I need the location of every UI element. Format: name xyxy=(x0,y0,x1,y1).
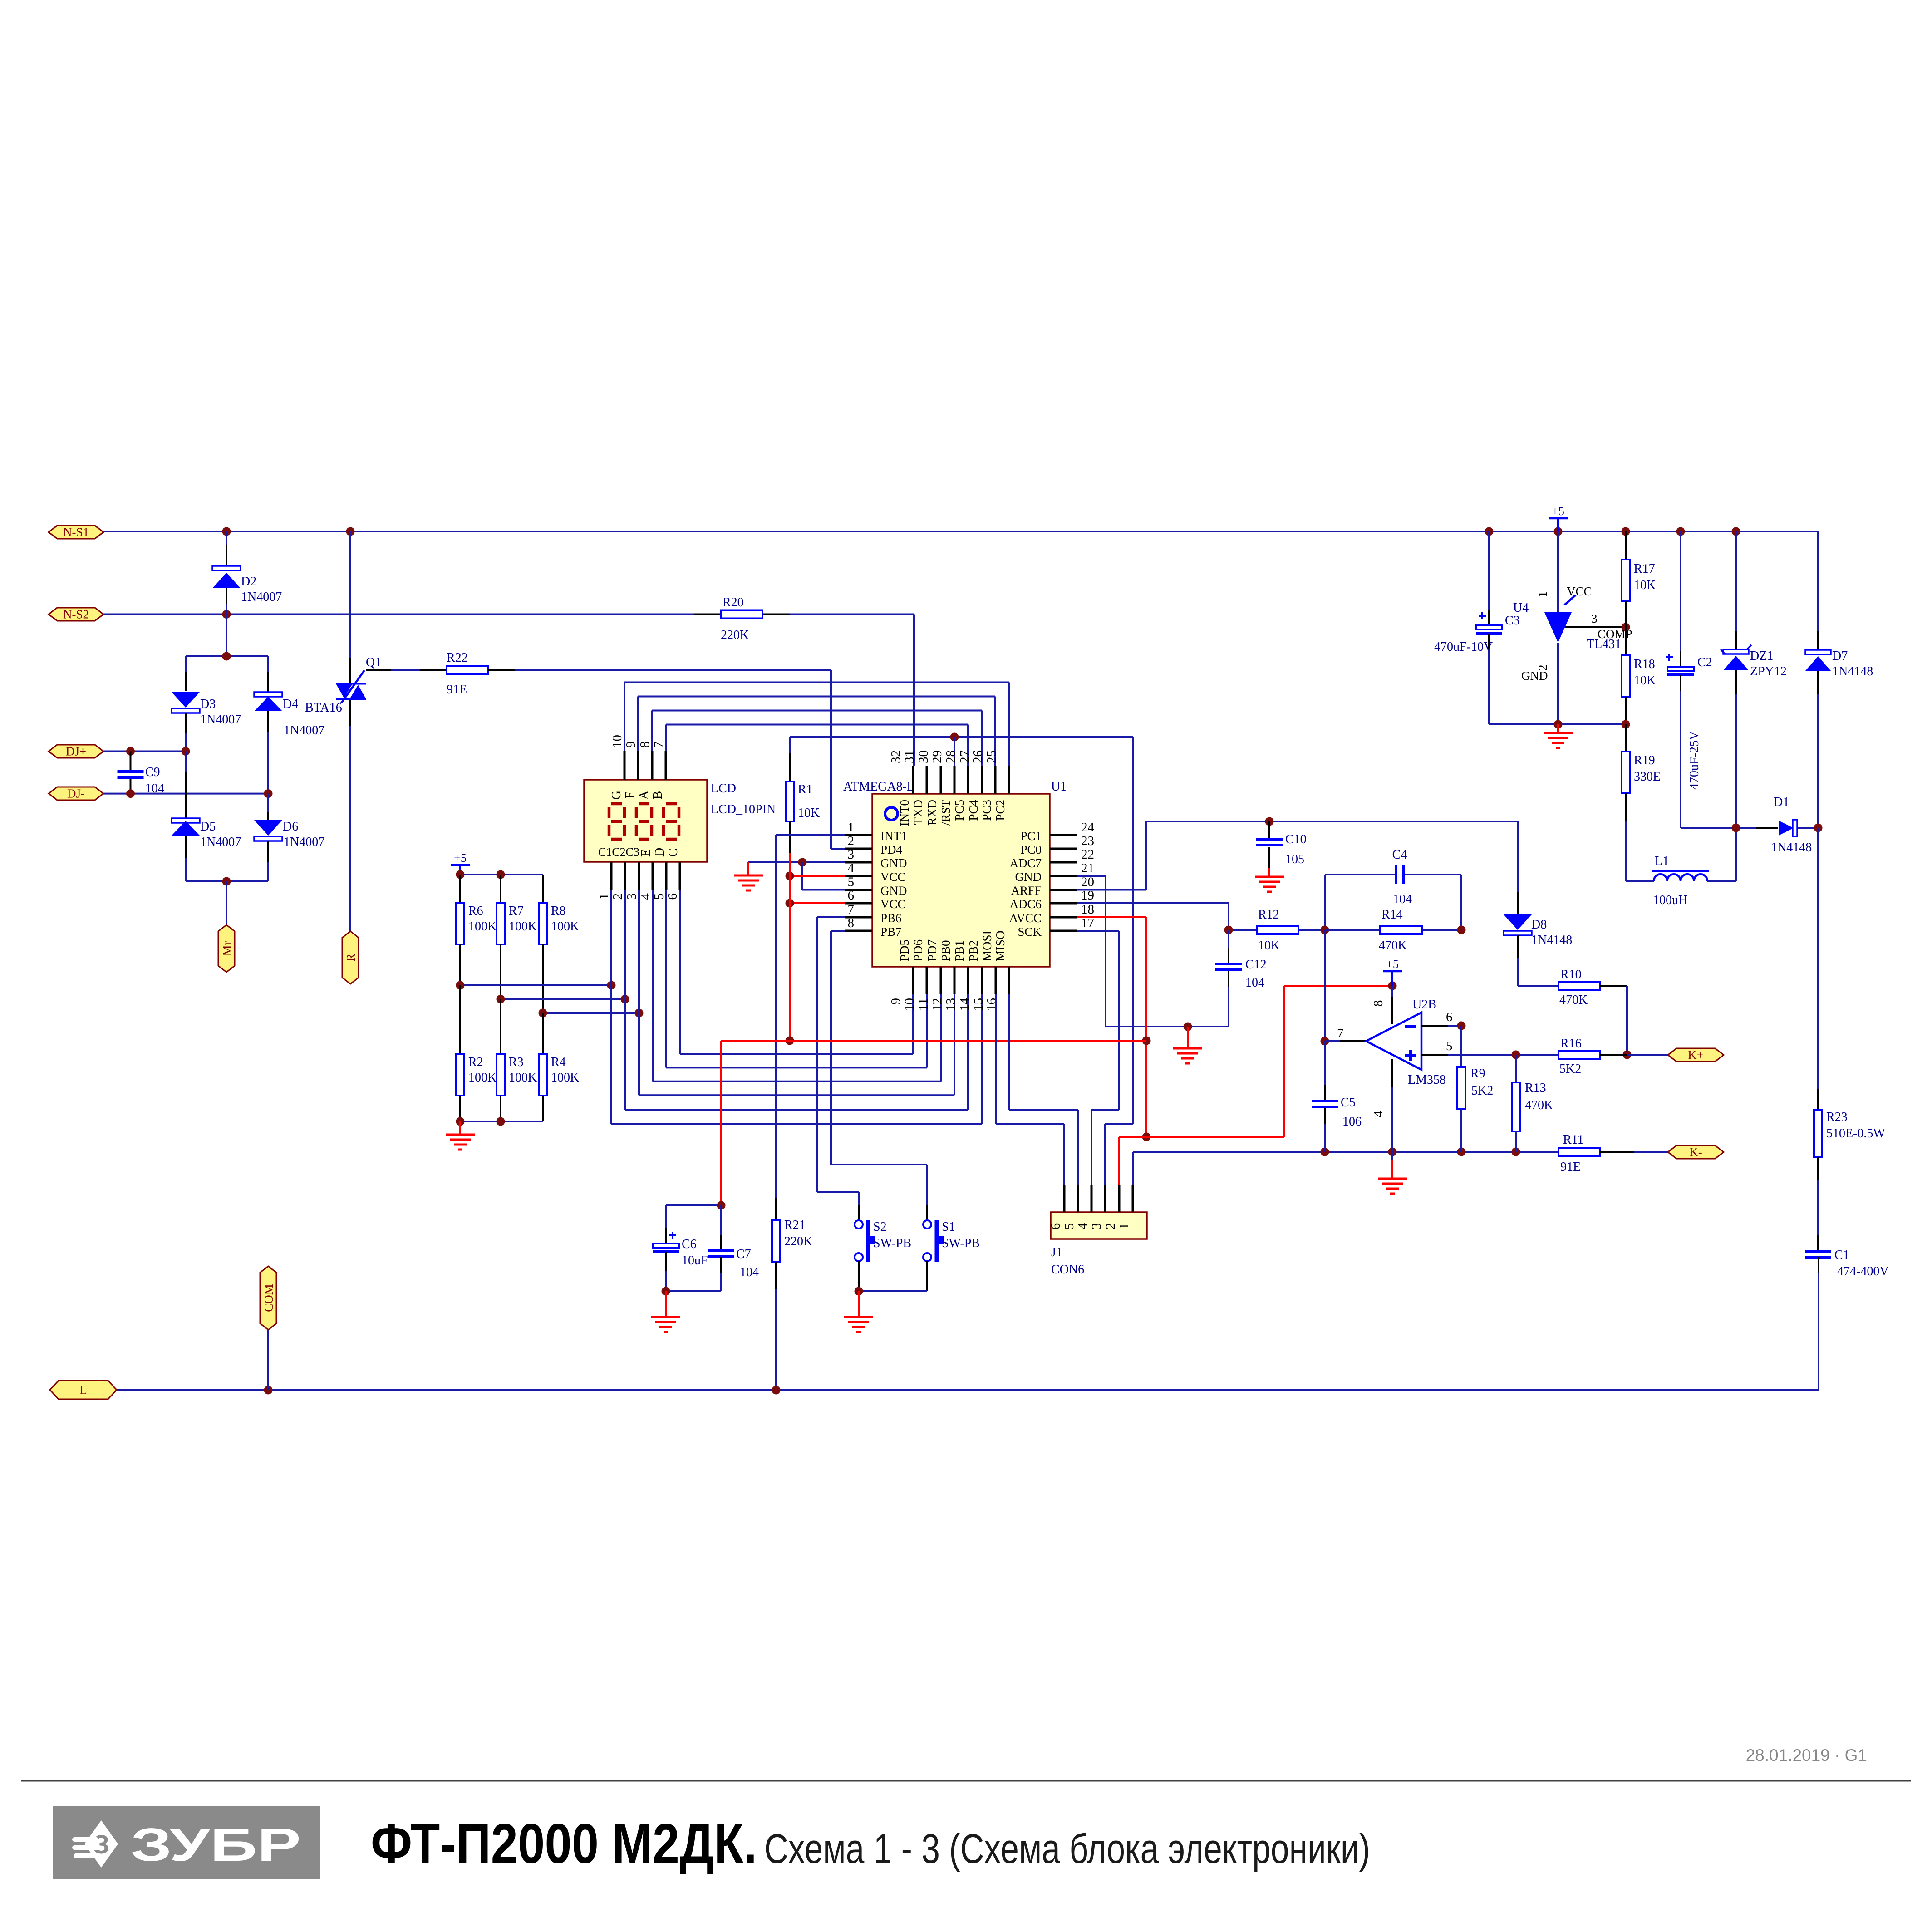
svg-text:27: 27 xyxy=(958,750,972,763)
svg-text:105: 105 xyxy=(1285,852,1304,866)
svg-text:220K: 220K xyxy=(721,628,749,642)
svg-text:3: 3 xyxy=(848,847,855,862)
svg-text:D1: D1 xyxy=(1774,795,1789,809)
svg-text:PD5: PD5 xyxy=(898,939,911,961)
svg-text:C: C xyxy=(666,848,680,857)
svg-text:J1: J1 xyxy=(1051,1245,1062,1259)
svg-text:SW-PB: SW-PB xyxy=(873,1236,911,1250)
svg-text:R19: R19 xyxy=(1634,753,1655,767)
svg-text:Схема 1 - 3 (Схема блока элект: Схема 1 - 3 (Схема блока электроники) xyxy=(764,1826,1370,1872)
svg-text:100K: 100K xyxy=(551,1071,579,1085)
svg-text:TXD: TXD xyxy=(911,800,925,825)
svg-text:20: 20 xyxy=(1081,875,1094,890)
svg-text:GND: GND xyxy=(880,856,907,870)
svg-text:10: 10 xyxy=(902,998,917,1011)
svg-text:10K: 10K xyxy=(1634,578,1656,592)
svg-text:5: 5 xyxy=(1062,1223,1077,1230)
svg-text:C2: C2 xyxy=(1697,655,1712,669)
svg-text:C3: C3 xyxy=(1505,614,1520,628)
svg-text:VCC: VCC xyxy=(880,870,906,884)
svg-text:100K: 100K xyxy=(468,1071,497,1085)
svg-text:VCC: VCC xyxy=(1567,585,1592,598)
svg-text:22: 22 xyxy=(1081,847,1094,862)
svg-text:PD4: PD4 xyxy=(880,843,903,856)
svg-text:1N4007: 1N4007 xyxy=(284,835,324,849)
svg-text:R20: R20 xyxy=(723,595,744,610)
svg-text:1: 1 xyxy=(848,820,855,835)
svg-text:R6: R6 xyxy=(468,904,483,918)
svg-text:R7: R7 xyxy=(509,904,524,918)
svg-text:PC3: PC3 xyxy=(980,800,993,821)
svg-text:6: 6 xyxy=(848,888,855,903)
svg-text:28.01.2019 · G1: 28.01.2019 · G1 xyxy=(1746,1746,1867,1765)
svg-text:U1: U1 xyxy=(1051,780,1067,794)
svg-text:5: 5 xyxy=(652,893,666,900)
svg-text:C1C2C3: C1C2C3 xyxy=(598,846,639,859)
svg-text:1N4007: 1N4007 xyxy=(241,590,282,604)
svg-text:11: 11 xyxy=(916,998,931,1011)
svg-text:12: 12 xyxy=(930,998,944,1011)
svg-text:C12: C12 xyxy=(1245,958,1267,972)
svg-text:R8: R8 xyxy=(551,904,566,918)
svg-text:104: 104 xyxy=(1393,892,1412,906)
svg-text:U2B: U2B xyxy=(1412,998,1436,1012)
svg-text:E: E xyxy=(639,849,653,857)
svg-text:GND: GND xyxy=(880,884,907,898)
svg-text:MOSI: MOSI xyxy=(980,930,994,961)
svg-text:D5: D5 xyxy=(200,820,216,834)
svg-text:4: 4 xyxy=(638,893,653,900)
svg-text:1N4148: 1N4148 xyxy=(1771,841,1812,855)
svg-text:R18: R18 xyxy=(1634,657,1655,671)
svg-text:1N4007: 1N4007 xyxy=(284,723,324,737)
svg-text:6: 6 xyxy=(1048,1223,1063,1230)
svg-text:ФТ-П2000 М2ДК.: ФТ-П2000 М2ДК. xyxy=(371,1813,757,1875)
svg-text:C6: C6 xyxy=(682,1237,697,1251)
svg-text:100K: 100K xyxy=(509,919,537,934)
svg-text:21: 21 xyxy=(1081,861,1094,875)
svg-text:LM358: LM358 xyxy=(1408,1073,1446,1087)
svg-text:474-400V: 474-400V xyxy=(1837,1264,1889,1278)
svg-text:16: 16 xyxy=(984,998,999,1011)
svg-text:R13: R13 xyxy=(1525,1081,1546,1095)
svg-text:MISO: MISO xyxy=(993,930,1007,961)
svg-text:4: 4 xyxy=(848,861,855,875)
svg-text:100uH: 100uH xyxy=(1653,893,1687,907)
svg-text:AVCC: AVCC xyxy=(1009,911,1042,925)
svg-text:R16: R16 xyxy=(1560,1037,1582,1051)
svg-text:PB7: PB7 xyxy=(880,925,902,939)
svg-text:D4: D4 xyxy=(283,697,298,711)
svg-text:ZPY12: ZPY12 xyxy=(1750,664,1787,678)
svg-text:S2: S2 xyxy=(873,1220,887,1234)
svg-text:K+: K+ xyxy=(1688,1048,1704,1062)
svg-text:8: 8 xyxy=(848,916,855,930)
svg-text:R21: R21 xyxy=(784,1218,806,1232)
svg-text:7: 7 xyxy=(1337,1026,1344,1041)
svg-text:6: 6 xyxy=(1446,1010,1453,1024)
svg-text:N-S2: N-S2 xyxy=(63,608,89,621)
svg-text:L: L xyxy=(79,1383,87,1397)
svg-text:INT1: INT1 xyxy=(880,829,907,843)
svg-text:R1: R1 xyxy=(798,782,813,796)
svg-text:1N4007: 1N4007 xyxy=(200,713,241,727)
svg-text:8: 8 xyxy=(638,742,652,748)
svg-text:C4: C4 xyxy=(1392,848,1407,862)
svg-text:RXD: RXD xyxy=(925,800,939,826)
svg-text:C10: C10 xyxy=(1285,832,1307,846)
svg-text:8: 8 xyxy=(1371,1000,1386,1007)
svg-text:R23: R23 xyxy=(1826,1110,1848,1124)
svg-text:1: 1 xyxy=(1536,591,1549,598)
svg-text:1N4148: 1N4148 xyxy=(1531,933,1572,947)
svg-text:10K: 10K xyxy=(1634,673,1656,688)
svg-text:PC5: PC5 xyxy=(953,800,966,821)
svg-text:104: 104 xyxy=(740,1265,759,1279)
svg-text:25: 25 xyxy=(984,750,999,763)
svg-text:R17: R17 xyxy=(1634,562,1655,576)
svg-text:15: 15 xyxy=(971,998,986,1011)
svg-text:+5: +5 xyxy=(1386,958,1399,971)
svg-text:D6: D6 xyxy=(283,820,298,834)
svg-text:3: 3 xyxy=(624,893,639,900)
svg-text:+5: +5 xyxy=(1552,505,1564,518)
svg-text:PB1: PB1 xyxy=(953,940,966,961)
svg-text:4: 4 xyxy=(1371,1111,1386,1117)
svg-text:F: F xyxy=(623,791,637,799)
svg-text:GND: GND xyxy=(1015,870,1042,884)
svg-text:10: 10 xyxy=(610,735,624,748)
svg-text:220K: 220K xyxy=(784,1234,812,1249)
svg-text:ЗУБР: ЗУБР xyxy=(131,1819,301,1871)
svg-text:+5: +5 xyxy=(454,851,467,865)
svg-text:DJ+: DJ+ xyxy=(66,745,86,758)
svg-text:C5: C5 xyxy=(1341,1096,1356,1110)
svg-text:PB6: PB6 xyxy=(880,911,902,925)
svg-text:COM: COM xyxy=(262,1284,275,1312)
svg-text:106: 106 xyxy=(1342,1115,1362,1129)
svg-text:A: A xyxy=(637,790,651,800)
svg-text:330E: 330E xyxy=(1634,770,1661,784)
svg-text:2: 2 xyxy=(610,893,625,900)
svg-text:ADC7: ADC7 xyxy=(1009,856,1042,870)
svg-text:5: 5 xyxy=(848,875,855,890)
svg-text:R9: R9 xyxy=(1470,1067,1485,1081)
svg-text:PB2: PB2 xyxy=(967,940,980,961)
svg-text:K-: K- xyxy=(1689,1145,1702,1159)
svg-text:91E: 91E xyxy=(1560,1160,1581,1174)
svg-text:28: 28 xyxy=(944,750,958,763)
svg-text:10K: 10K xyxy=(798,806,820,820)
svg-text:100K: 100K xyxy=(509,1071,537,1085)
svg-text:CON6: CON6 xyxy=(1051,1263,1084,1277)
svg-text:PD6: PD6 xyxy=(911,939,925,961)
svg-text:/RST: /RST xyxy=(939,800,953,826)
svg-text:Mr: Mr xyxy=(220,941,234,956)
svg-text:R: R xyxy=(344,954,358,962)
svg-text:1: 1 xyxy=(597,893,611,900)
svg-text:470K: 470K xyxy=(1559,993,1588,1007)
svg-text:PC2: PC2 xyxy=(993,800,1007,821)
svg-text:5K2: 5K2 xyxy=(1471,1084,1493,1098)
svg-text:30: 30 xyxy=(916,750,931,763)
svg-text:Q1: Q1 xyxy=(366,655,381,669)
svg-text:7: 7 xyxy=(848,902,855,917)
svg-text:R3: R3 xyxy=(509,1055,524,1069)
svg-text:COMP: COMP xyxy=(1598,627,1632,641)
svg-text:PD7: PD7 xyxy=(925,939,939,961)
svg-text:6: 6 xyxy=(665,893,680,900)
svg-text:INT0: INT0 xyxy=(898,800,911,826)
svg-text:R10: R10 xyxy=(1560,968,1582,982)
svg-text:7: 7 xyxy=(651,742,666,748)
svg-text:R11: R11 xyxy=(1563,1133,1584,1147)
svg-text:D: D xyxy=(653,848,667,857)
svg-text:29: 29 xyxy=(930,750,944,763)
svg-text:SW-PB: SW-PB xyxy=(942,1236,980,1250)
svg-text:ATMEGA8-L: ATMEGA8-L xyxy=(843,780,914,794)
svg-text:N-S1: N-S1 xyxy=(63,526,89,539)
svg-text:PC4: PC4 xyxy=(967,800,980,821)
svg-text:510E-0.5W: 510E-0.5W xyxy=(1826,1126,1885,1141)
svg-text:18: 18 xyxy=(1081,902,1094,917)
svg-text:PC0: PC0 xyxy=(1020,843,1042,856)
svg-text:C1: C1 xyxy=(1834,1248,1849,1262)
svg-text:5: 5 xyxy=(1446,1039,1453,1053)
svg-text:3: 3 xyxy=(1591,612,1598,625)
svg-text:104: 104 xyxy=(1245,976,1264,990)
svg-text:D7: D7 xyxy=(1832,649,1848,663)
svg-text:R2: R2 xyxy=(468,1055,483,1069)
svg-text:5K2: 5K2 xyxy=(1559,1062,1581,1076)
svg-text:100K: 100K xyxy=(551,919,579,934)
svg-text:470uF-10V: 470uF-10V xyxy=(1434,640,1493,654)
svg-text:PB0: PB0 xyxy=(939,940,953,961)
svg-text:ADC6: ADC6 xyxy=(1009,897,1042,911)
svg-text:1: 1 xyxy=(1117,1223,1131,1230)
svg-text:3: 3 xyxy=(1089,1223,1104,1230)
svg-text:S1: S1 xyxy=(942,1220,955,1234)
svg-text:470uF-25V: 470uF-25V xyxy=(1687,731,1701,790)
svg-text:G: G xyxy=(610,791,624,800)
svg-text:10K: 10K xyxy=(1258,939,1280,953)
svg-text:SCK: SCK xyxy=(1018,925,1042,939)
svg-text:L1: L1 xyxy=(1655,854,1669,868)
svg-text:14: 14 xyxy=(958,998,972,1012)
svg-text:2: 2 xyxy=(848,834,855,848)
svg-text:LCD_10PIN: LCD_10PIN xyxy=(711,802,776,816)
svg-text:B: B xyxy=(651,791,665,800)
svg-text:4: 4 xyxy=(1076,1223,1090,1229)
svg-text:D2: D2 xyxy=(241,575,256,589)
svg-text:D8: D8 xyxy=(1531,918,1547,932)
svg-text:470K: 470K xyxy=(1525,1098,1553,1112)
svg-text:32: 32 xyxy=(889,750,903,763)
svg-text:R4: R4 xyxy=(551,1055,566,1069)
svg-text:26: 26 xyxy=(971,750,985,763)
svg-text:D3: D3 xyxy=(200,697,216,711)
svg-text:10uF: 10uF xyxy=(682,1254,708,1268)
svg-text:24: 24 xyxy=(1081,820,1095,835)
svg-text:R14: R14 xyxy=(1381,908,1403,922)
svg-text:31: 31 xyxy=(902,750,917,763)
svg-text:1N4148: 1N4148 xyxy=(1832,664,1873,678)
svg-text:R22: R22 xyxy=(447,651,468,665)
svg-text:91E: 91E xyxy=(447,683,467,697)
svg-text:2: 2 xyxy=(1103,1223,1118,1230)
svg-text:PC1: PC1 xyxy=(1020,829,1042,843)
svg-text:100K: 100K xyxy=(468,919,497,934)
svg-text:1N4007: 1N4007 xyxy=(200,835,241,849)
svg-text:C9: C9 xyxy=(145,765,160,779)
svg-text:ARFF: ARFF xyxy=(1011,884,1042,898)
svg-text:DJ-: DJ- xyxy=(67,787,85,801)
svg-text:C7: C7 xyxy=(736,1247,751,1261)
svg-text:BTA16: BTA16 xyxy=(305,701,342,715)
svg-text:U4: U4 xyxy=(1513,601,1529,615)
svg-text:VCC: VCC xyxy=(880,897,906,911)
svg-text:R12: R12 xyxy=(1258,908,1279,922)
svg-text:2: 2 xyxy=(1536,665,1549,671)
svg-text:13: 13 xyxy=(944,998,958,1011)
svg-text:DZ1: DZ1 xyxy=(1750,649,1773,663)
svg-text:9: 9 xyxy=(624,742,638,748)
svg-text:9: 9 xyxy=(889,998,903,1005)
svg-text:23: 23 xyxy=(1081,834,1094,848)
svg-text:LCD: LCD xyxy=(711,782,736,796)
svg-text:470K: 470K xyxy=(1379,939,1407,953)
